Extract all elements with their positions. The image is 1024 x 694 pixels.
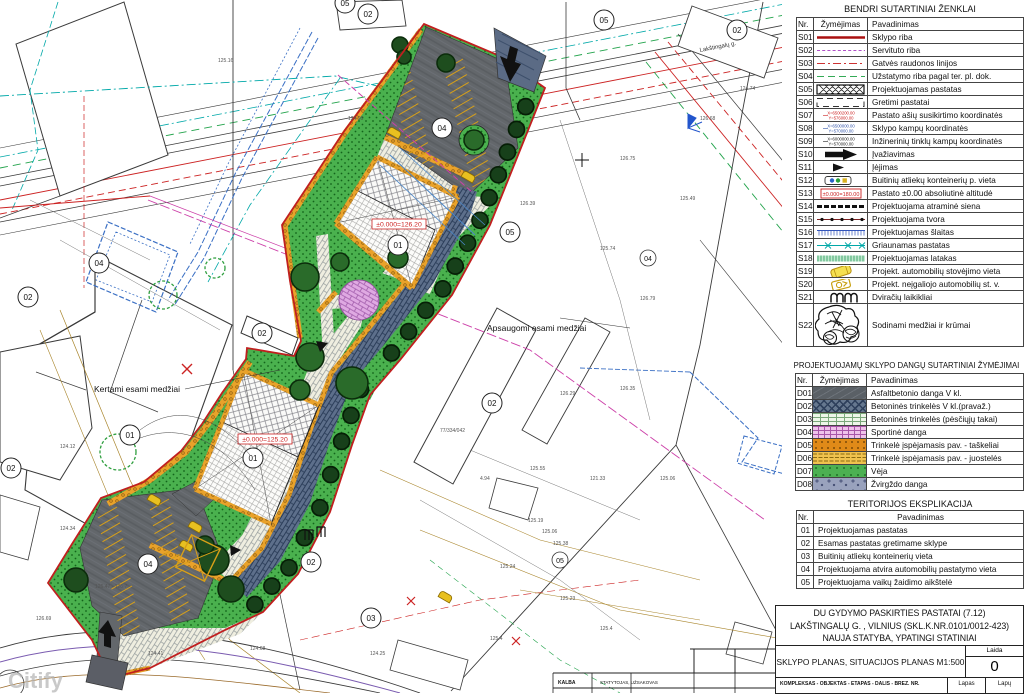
svg-text:124.68: 124.68 — [250, 646, 266, 652]
svg-text:01: 01 — [394, 241, 403, 250]
svg-text:05: 05 — [341, 0, 350, 8]
svg-text:125.23: 125.23 — [560, 596, 576, 602]
svg-text:124.25: 124.25 — [370, 651, 386, 657]
svg-text:126.75: 126.75 — [620, 156, 636, 162]
svg-text:126.29: 126.29 — [560, 391, 576, 397]
svg-text:02: 02 — [364, 10, 373, 19]
svg-text:05: 05 — [506, 228, 515, 237]
svg-text:125.38: 125.38 — [553, 541, 569, 547]
svg-text:125.06: 125.06 — [660, 476, 676, 482]
svg-text:Citify: Citify — [8, 668, 64, 693]
svg-text:02: 02 — [7, 464, 16, 473]
svg-text:Kertami esami medžiai: Kertami esami medžiai — [94, 384, 180, 394]
svg-text:01: 01 — [126, 431, 135, 440]
svg-text:125.16: 125.16 — [218, 58, 234, 64]
svg-text:05: 05 — [600, 16, 609, 25]
svg-text:125.74: 125.74 — [600, 246, 616, 252]
svg-text:04: 04 — [95, 259, 104, 268]
svg-text:±0.000=125.20: ±0.000=125.20 — [242, 437, 288, 444]
svg-text:Y=570000.00: Y=570000.00 — [828, 128, 854, 133]
svg-text:125.24: 125.24 — [500, 564, 516, 570]
svg-text:121.33: 121.33 — [590, 476, 606, 482]
svg-text:124.90: 124.90 — [348, 116, 364, 122]
svg-text:126.39: 126.39 — [520, 201, 536, 207]
svg-text:125.4: 125.4 — [490, 636, 503, 642]
svg-text:Apsaugomi esami medžiai: Apsaugomi esami medžiai — [487, 323, 586, 333]
svg-text:STATYTOJAS, UŽSAKOVAS: STATYTOJAS, UŽSAKOVAS — [600, 678, 658, 685]
svg-text:05: 05 — [556, 558, 564, 565]
svg-text:124.34: 124.34 — [60, 526, 76, 532]
svg-text:125.4: 125.4 — [600, 626, 613, 632]
svg-text:01: 01 — [249, 454, 258, 463]
svg-text:03: 03 — [367, 614, 376, 623]
svg-text:02: 02 — [258, 329, 267, 338]
svg-text:±0.000=180.00: ±0.000=180.00 — [822, 191, 859, 197]
svg-text:02: 02 — [488, 399, 497, 408]
svg-text:124.74: 124.74 — [740, 86, 756, 92]
svg-text:125.55: 125.55 — [530, 466, 546, 472]
svg-text:126.69: 126.69 — [36, 616, 52, 622]
svg-text:125.06: 125.06 — [542, 529, 558, 535]
svg-text:KALBA: KALBA — [558, 680, 576, 686]
svg-text:124.41: 124.41 — [148, 651, 164, 657]
svg-text:04: 04 — [644, 256, 652, 263]
svg-text:77/334/042: 77/334/042 — [440, 428, 465, 434]
svg-text:02: 02 — [24, 293, 33, 302]
svg-text:126.79: 126.79 — [640, 296, 656, 302]
svg-text:04: 04 — [144, 560, 153, 569]
svg-text:04: 04 — [438, 124, 447, 133]
svg-text:124.12: 124.12 — [60, 444, 76, 450]
svg-text:±0.000=126.20: ±0.000=126.20 — [376, 222, 422, 229]
svg-text:125.19: 125.19 — [528, 518, 544, 524]
svg-text:126.35: 126.35 — [620, 386, 636, 392]
svg-text:126.47 - 126.7: 126.47 - 126.7 — [95, 584, 127, 590]
svg-text:02: 02 — [307, 558, 316, 567]
svg-text:Y=570000.00: Y=570000.00 — [828, 141, 854, 146]
svg-text:126.68: 126.68 — [700, 116, 716, 122]
svg-text:02: 02 — [733, 26, 742, 35]
svg-text:125.49: 125.49 — [680, 196, 696, 202]
svg-text:4.94: 4.94 — [480, 476, 490, 482]
svg-text:Y=576000.00: Y=576000.00 — [828, 115, 854, 120]
